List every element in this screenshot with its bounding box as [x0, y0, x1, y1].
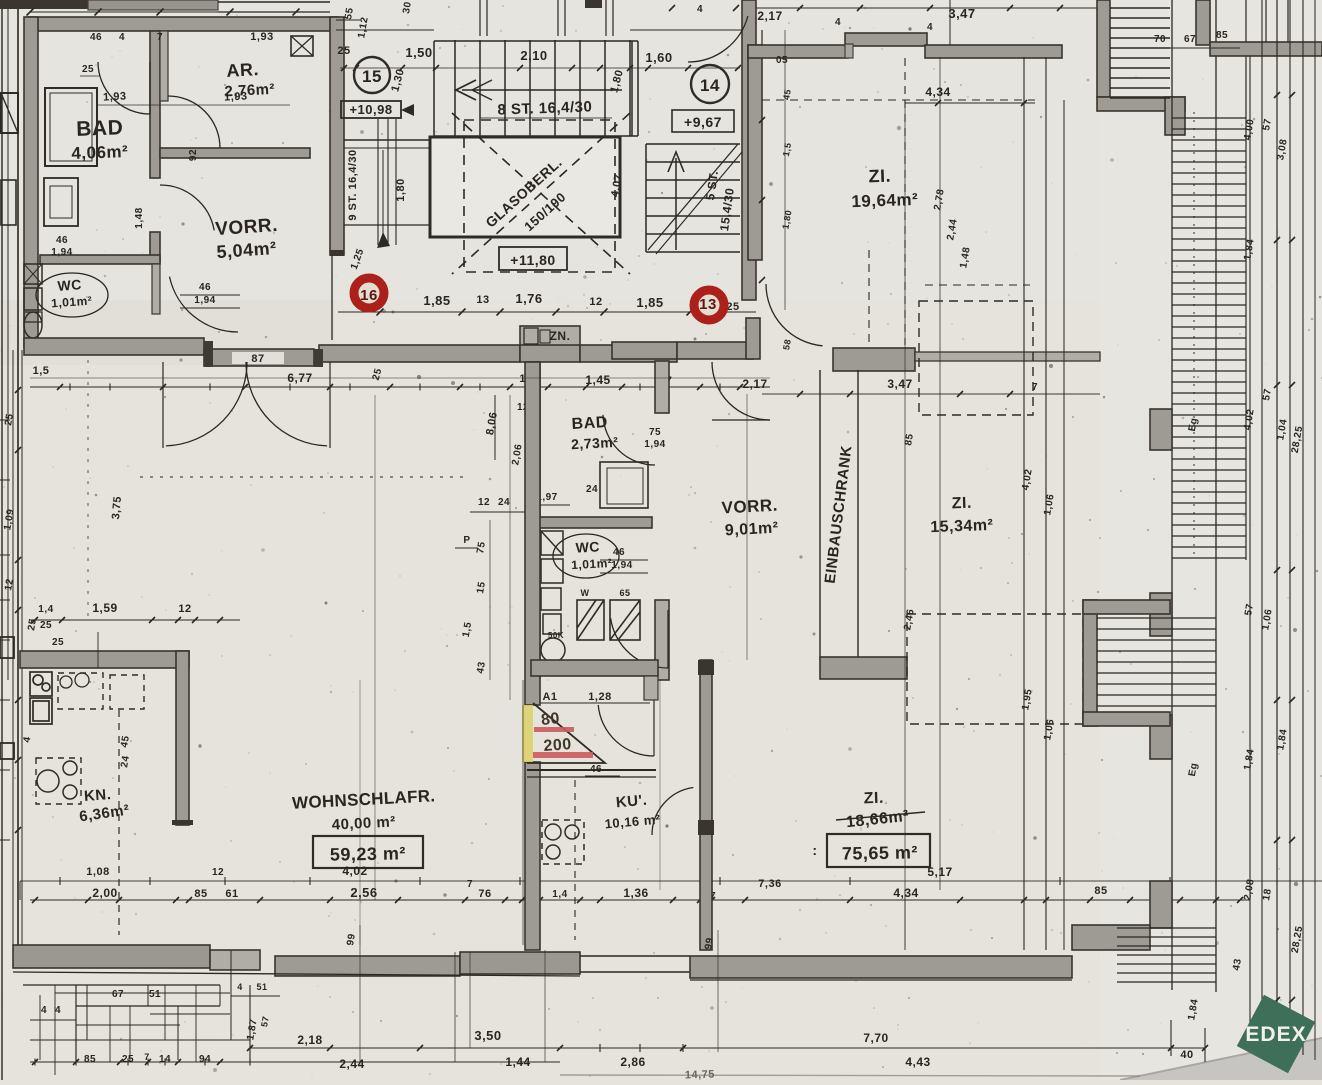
svg-text:67: 67	[1184, 34, 1196, 45]
svg-text:KN.: KN.	[83, 786, 111, 805]
svg-text:2,00: 2,00	[92, 886, 117, 900]
svg-text:45: 45	[119, 735, 132, 749]
svg-text:19,64m²: 19,64m²	[851, 190, 918, 211]
svg-text:1,94: 1,94	[644, 439, 665, 450]
svg-text:2,56: 2,56	[350, 885, 377, 900]
svg-text:KU'.: KU'.	[615, 792, 648, 812]
svg-text:4: 4	[237, 982, 243, 992]
svg-text:Eg: Eg	[1187, 417, 1200, 432]
svg-text:4: 4	[41, 1005, 47, 1016]
svg-text:25: 25	[337, 45, 350, 57]
svg-text:4,02: 4,02	[342, 864, 367, 878]
svg-text:7: 7	[467, 879, 473, 890]
svg-text:57: 57	[1261, 388, 1274, 402]
svg-text:W: W	[581, 588, 590, 598]
svg-text:46: 46	[90, 32, 102, 43]
svg-text:3,75: 3,75	[110, 496, 124, 520]
svg-text:4: 4	[927, 22, 933, 33]
svg-text:85: 85	[1094, 885, 1107, 897]
svg-text:1,59: 1,59	[92, 601, 117, 615]
svg-text:2,10: 2,10	[520, 48, 547, 63]
svg-text:7,70: 7,70	[863, 1031, 888, 1045]
svg-text:1,76: 1,76	[515, 291, 542, 306]
svg-text:7: 7	[157, 32, 163, 43]
svg-text:80: 80	[540, 710, 560, 729]
svg-text:75: 75	[649, 427, 661, 438]
svg-text:5,04m²: 5,04m²	[216, 238, 277, 262]
svg-text:85: 85	[1216, 30, 1228, 41]
svg-text:A1: A1	[542, 691, 557, 703]
svg-text:46: 46	[56, 235, 68, 246]
svg-text:30: 30	[401, 1, 414, 15]
svg-text:1,94: 1,94	[51, 247, 72, 258]
svg-text:AR.: AR.	[226, 59, 260, 81]
svg-text:1,01m²: 1,01m²	[51, 294, 93, 311]
svg-text:43: 43	[1231, 958, 1244, 972]
svg-text:1,80: 1,80	[395, 178, 407, 201]
svg-text:99: 99	[345, 933, 358, 947]
svg-text:4,34: 4,34	[893, 886, 918, 900]
svg-text:25: 25	[52, 637, 64, 648]
svg-text:99: 99	[703, 937, 716, 951]
svg-text:14,75: 14,75	[685, 1068, 715, 1080]
svg-text:25: 25	[26, 618, 39, 632]
svg-text:55: 55	[343, 7, 356, 21]
svg-text:ZN.: ZN.	[550, 329, 571, 343]
svg-text:57: 57	[1243, 603, 1256, 617]
svg-text:87: 87	[251, 353, 264, 365]
svg-text:+9,67: +9,67	[684, 114, 722, 130]
svg-text:3,47: 3,47	[948, 6, 975, 21]
svg-text:3,47: 3,47	[887, 377, 912, 391]
svg-text:4,34: 4,34	[925, 85, 950, 99]
svg-text:12: 12	[589, 296, 602, 308]
svg-text:25: 25	[82, 64, 94, 75]
svg-text:2,73m²: 2,73m²	[571, 434, 619, 452]
svg-text:51: 51	[256, 982, 267, 992]
svg-text:1,94: 1,94	[611, 560, 632, 571]
svg-text:51: 51	[149, 989, 161, 1000]
svg-text:7: 7	[1032, 382, 1038, 393]
svg-text:40: 40	[1180, 1049, 1193, 1061]
svg-text:1,4: 1,4	[38, 604, 53, 615]
svg-text:ZI.: ZI.	[863, 790, 884, 808]
svg-text:61: 61	[225, 888, 238, 900]
svg-text:85: 85	[84, 1054, 96, 1065]
svg-text:2,17: 2,17	[757, 9, 782, 23]
svg-text:+11,80: +11,80	[510, 252, 555, 268]
svg-text:1,48: 1,48	[134, 207, 145, 228]
svg-text:67: 67	[112, 989, 124, 1000]
svg-text:13: 13	[699, 296, 717, 313]
svg-text:58: 58	[781, 338, 793, 351]
svg-text:50K: 50K	[548, 631, 564, 640]
svg-text:13: 13	[476, 294, 489, 306]
svg-text:15: 15	[362, 67, 382, 86]
svg-text:P: P	[463, 535, 470, 546]
svg-text:BAD: BAD	[76, 116, 124, 141]
svg-text:EDEX: EDEX	[1245, 1023, 1306, 1046]
svg-text:1,93: 1,93	[224, 90, 248, 103]
svg-text:1,85: 1,85	[423, 293, 450, 308]
svg-text:1,60: 1,60	[645, 50, 672, 65]
svg-text:25: 25	[40, 620, 52, 631]
svg-text:4: 4	[697, 4, 703, 15]
svg-text:Eg: Eg	[1187, 762, 1200, 777]
svg-text:24: 24	[119, 755, 132, 769]
svg-text:12: 12	[212, 867, 224, 878]
svg-text:2,44: 2,44	[339, 1057, 364, 1071]
svg-text:92: 92	[188, 149, 199, 161]
svg-text:9 ST. 16,4/30: 9 ST. 16,4/30	[347, 149, 359, 220]
svg-text:7,36: 7,36	[758, 878, 781, 890]
svg-text:1,01m²: 1,01m²	[571, 556, 613, 572]
svg-text:45: 45	[781, 88, 793, 101]
svg-text:65: 65	[619, 588, 630, 598]
svg-text:05: 05	[776, 55, 788, 66]
svg-text:18: 18	[1261, 888, 1274, 902]
svg-text:12: 12	[3, 578, 16, 592]
svg-text:3,50: 3,50	[474, 1028, 501, 1043]
svg-text:2,18: 2,18	[297, 1033, 322, 1047]
svg-text:4: 4	[119, 32, 125, 43]
svg-text:1,85: 1,85	[636, 295, 663, 310]
svg-text:2,86: 2,86	[620, 1055, 645, 1069]
svg-text:VORR.: VORR.	[215, 215, 279, 240]
svg-text:57: 57	[1261, 118, 1274, 132]
svg-text:4: 4	[55, 1005, 61, 1016]
svg-text:+10,98: +10,98	[349, 102, 392, 117]
svg-text:12: 12	[478, 497, 490, 508]
svg-text:1,93: 1,93	[103, 90, 127, 103]
svg-text:1,50: 1,50	[405, 45, 432, 60]
svg-text:46: 46	[590, 764, 602, 775]
svg-text:40,00 m²: 40,00 m²	[331, 813, 396, 833]
svg-text:WC: WC	[57, 276, 82, 294]
svg-text:70: 70	[1154, 34, 1166, 45]
svg-text:ZI.: ZI.	[868, 166, 891, 187]
svg-text:85: 85	[194, 888, 207, 900]
svg-text:76: 76	[478, 888, 491, 900]
svg-text:59,23 m²: 59,23 m²	[330, 843, 406, 864]
svg-text:2,17: 2,17	[742, 377, 767, 391]
svg-text:1,5: 1,5	[33, 365, 50, 377]
svg-text::: :	[812, 842, 817, 858]
svg-text:46: 46	[613, 547, 625, 558]
svg-text:75,65 m²: 75,65 m²	[842, 842, 918, 863]
svg-text:4,06m²: 4,06m²	[71, 142, 129, 163]
svg-text:9,01m²: 9,01m²	[725, 520, 780, 540]
svg-text:46: 46	[199, 282, 211, 293]
svg-text:8 ST. 16,4/30: 8 ST. 16,4/30	[497, 98, 592, 118]
svg-text:12: 12	[178, 603, 191, 615]
svg-text:24: 24	[498, 497, 510, 508]
svg-text:14: 14	[700, 76, 720, 95]
svg-text:ZI.: ZI.	[951, 495, 972, 513]
svg-text:15: 15	[475, 581, 488, 595]
svg-text:1,08: 1,08	[86, 866, 109, 878]
svg-text:1,94: 1,94	[194, 295, 215, 306]
svg-text:16: 16	[360, 287, 378, 304]
svg-text:WC: WC	[575, 538, 600, 555]
svg-text:24: 24	[586, 484, 598, 495]
svg-text:VORR.: VORR.	[721, 496, 778, 518]
svg-text:43: 43	[475, 661, 488, 675]
svg-text:1,28: 1,28	[588, 691, 611, 703]
svg-text:1,36: 1,36	[623, 886, 648, 900]
svg-text:57: 57	[259, 1015, 271, 1028]
svg-text:4: 4	[835, 17, 841, 28]
svg-text:1,93: 1,93	[250, 31, 273, 43]
svg-text:4,43: 4,43	[905, 1055, 930, 1069]
svg-text:1,4: 1,4	[552, 889, 567, 900]
